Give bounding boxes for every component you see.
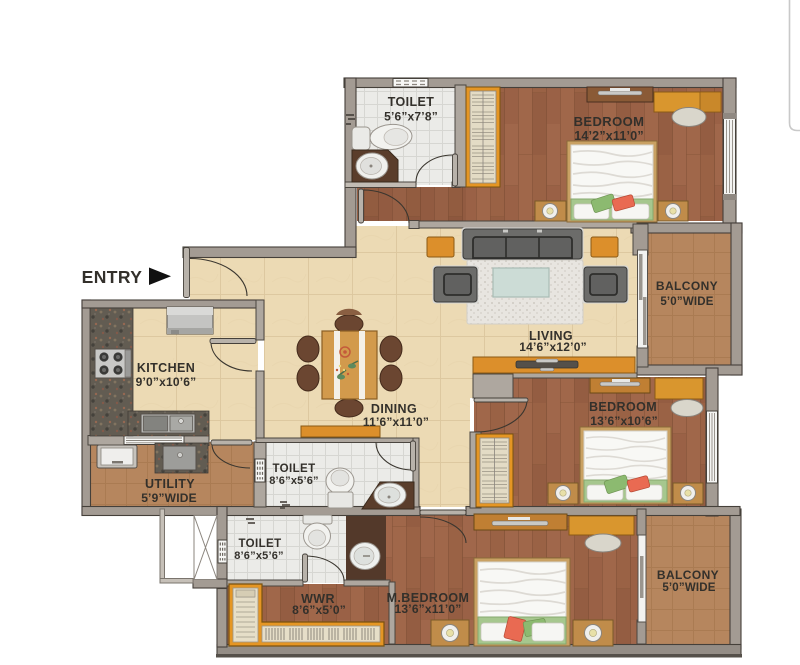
svg-text:8’6”x5’6”: 8’6”x5’6” bbox=[234, 550, 284, 562]
svg-text:BEDROOM: BEDROOM bbox=[574, 114, 645, 129]
svg-text:5’0”WIDE: 5’0”WIDE bbox=[660, 296, 713, 308]
svg-text:8’6”x5’0”: 8’6”x5’0” bbox=[292, 603, 346, 617]
svg-text:BALCONY: BALCONY bbox=[656, 279, 718, 293]
svg-text:ENTRY: ENTRY bbox=[82, 267, 143, 287]
svg-text:TOILET: TOILET bbox=[238, 538, 281, 550]
svg-text:UTILITY: UTILITY bbox=[145, 477, 195, 491]
svg-text:5’9”WIDE: 5’9”WIDE bbox=[141, 491, 197, 505]
svg-text:KITCHEN: KITCHEN bbox=[137, 361, 195, 375]
svg-text:8’6”x5’6”: 8’6”x5’6” bbox=[269, 475, 319, 487]
svg-text:13’6”x11’0”: 13’6”x11’0” bbox=[395, 602, 462, 616]
svg-text:5’0”WIDE: 5’0”WIDE bbox=[662, 582, 715, 594]
svg-text:14’2”x11’0”: 14’2”x11’0” bbox=[574, 129, 644, 143]
svg-text:BALCONY: BALCONY bbox=[657, 568, 719, 582]
svg-text:5’6”x7’8”: 5’6”x7’8” bbox=[384, 110, 438, 124]
svg-text:9’0”x10’6”: 9’0”x10’6” bbox=[136, 375, 197, 389]
svg-text:DINING: DINING bbox=[371, 402, 417, 416]
svg-text:TOILET: TOILET bbox=[388, 95, 435, 109]
svg-text:11’6”x11’0”: 11’6”x11’0” bbox=[363, 415, 429, 429]
svg-text:BEDROOM: BEDROOM bbox=[589, 400, 657, 414]
svg-text:TOILET: TOILET bbox=[272, 463, 315, 475]
svg-text:13’6”x10’6”: 13’6”x10’6” bbox=[590, 414, 658, 428]
svg-text:14’6”x12’0”: 14’6”x12’0” bbox=[519, 340, 587, 354]
